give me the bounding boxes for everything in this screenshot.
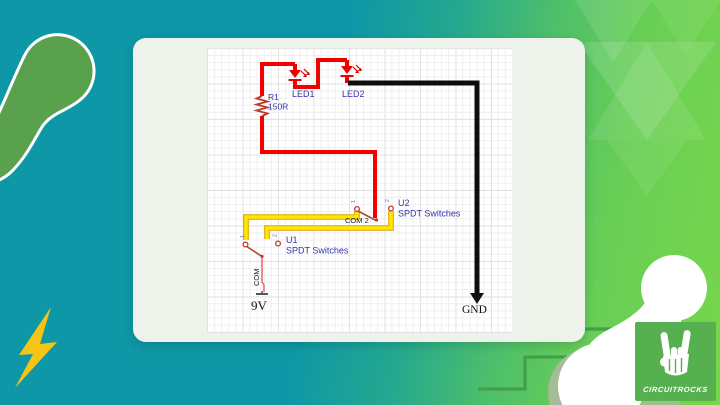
brand-name: CIRCUITROCKS (635, 385, 717, 394)
brand-logo: CIRCUITROCKS (635, 322, 716, 401)
leaf-blob-top-left (0, 36, 93, 178)
slide-background: R1 150R LED1 LED2 (0, 0, 720, 405)
lightning-bolt-icon (15, 307, 57, 388)
triangle-pattern-decor (575, 0, 720, 196)
schematic-canvas (207, 48, 513, 333)
